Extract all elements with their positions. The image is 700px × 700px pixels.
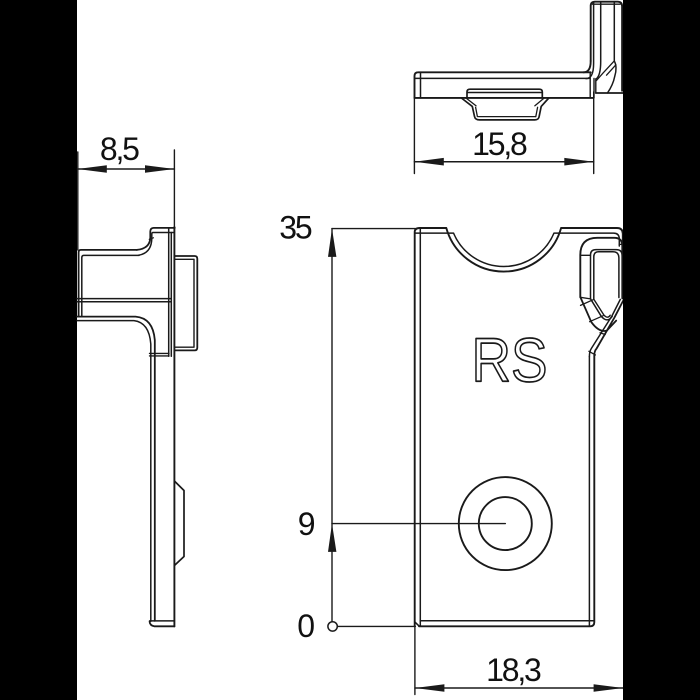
svg-text:8,5: 8,5 (100, 131, 139, 167)
svg-text:18,3: 18,3 (486, 652, 541, 688)
svg-text:0: 0 (297, 608, 314, 644)
svg-text:RS: RS (472, 327, 548, 396)
svg-text:9: 9 (298, 506, 315, 542)
svg-text:15,8: 15,8 (472, 126, 527, 162)
svg-text:35: 35 (279, 209, 312, 245)
